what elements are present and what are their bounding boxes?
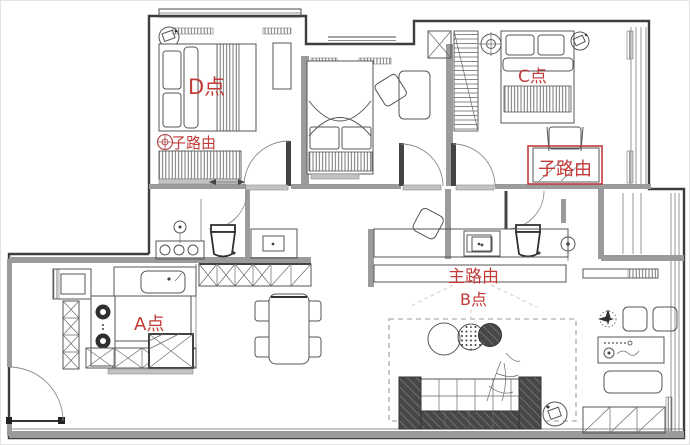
bathroom-1	[156, 179, 247, 259]
entry-door	[6, 367, 65, 424]
wardrobe	[454, 31, 478, 131]
kitchen-sink	[141, 271, 185, 293]
shower-drain-icon	[174, 221, 186, 243]
curtain-symbol	[627, 31, 633, 59]
blanket	[309, 152, 372, 171]
point-b-label: B点	[460, 290, 487, 309]
balcony	[583, 307, 677, 433]
wall-bedrooms-south	[291, 184, 401, 189]
kitchen	[53, 267, 196, 374]
wall-bedrooms-south	[149, 184, 246, 189]
stool	[623, 307, 647, 331]
wall-bath2-east	[598, 189, 604, 259]
desk-chair	[373, 73, 407, 107]
living-room	[389, 319, 576, 429]
floor-plant-icon	[543, 402, 567, 426]
balcony-table	[598, 337, 664, 363]
wall-bath1-east	[245, 187, 250, 261]
door-bedroom-c	[451, 143, 495, 190]
curtain-symbol	[263, 28, 291, 34]
kitchen-cart	[149, 334, 193, 368]
bedside-lamp-icon	[571, 32, 589, 50]
counter-sink	[114, 267, 196, 296]
point-a-label: A点	[134, 314, 164, 335]
shower-partition	[561, 199, 566, 223]
toilet	[516, 225, 541, 257]
point-c-label: C点	[518, 67, 547, 87]
vanity-sink	[156, 241, 204, 259]
lounge-stool	[411, 207, 445, 241]
door-bathroom-2	[506, 191, 544, 229]
wall-left	[7, 259, 12, 367]
single-bed	[307, 61, 373, 179]
compass-plant-icon	[598, 309, 616, 327]
sofa	[399, 377, 541, 429]
tall-cabinet	[63, 301, 79, 369]
microwave-shelf	[53, 269, 91, 299]
blanket	[504, 86, 571, 112]
bench	[604, 371, 662, 393]
hallway-cabinet-row	[199, 264, 311, 286]
door-bedroom-d	[244, 141, 291, 190]
curtain-symbol	[628, 269, 658, 278]
main-router-label: 主路由	[448, 267, 499, 287]
curtain-symbol	[666, 397, 672, 431]
wall-balcony-north	[601, 255, 684, 261]
washbasin-nook	[251, 229, 297, 258]
bathroom-2	[464, 191, 575, 261]
door-bedroom-middle	[399, 143, 443, 190]
curtain-symbol	[627, 151, 633, 183]
dining-area	[255, 294, 321, 364]
point-d-label: D点	[188, 75, 225, 99]
coffee-table	[428, 323, 502, 355]
window-right-bay	[627, 27, 646, 186]
nightstand	[273, 43, 291, 89]
toilet	[211, 225, 236, 257]
curtain-symbol	[173, 28, 213, 34]
wall-living-west	[368, 229, 374, 287]
floor-plan-canvas: D点 子路由 C点 子路由 主路由 B点 A点	[0, 0, 690, 445]
floor-plan: D点 子路由 C点 子路由 主路由 B点 A点	[1, 1, 690, 445]
stool	[653, 307, 677, 331]
ceiling-light-icon	[479, 32, 503, 56]
wardrobe	[159, 151, 241, 184]
sub-router-d-label: 子路由	[171, 134, 216, 152]
sub-router-c-label: 子路由	[538, 159, 592, 180]
wall-bath2-west	[445, 189, 451, 259]
desk	[399, 71, 430, 119]
bedroom-d	[159, 27, 291, 190]
bedroom-middle	[307, 58, 443, 190]
plant-decor	[487, 353, 520, 401]
dining-table	[269, 294, 309, 364]
